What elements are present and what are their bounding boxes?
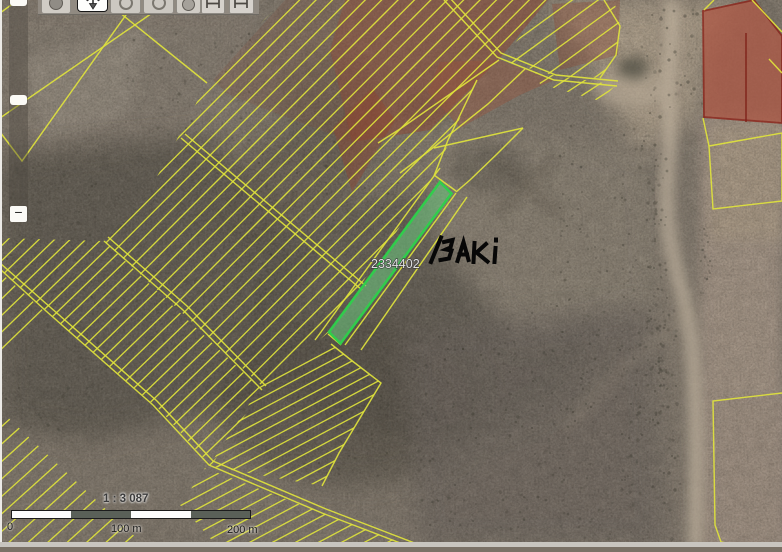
svg-text:2334402: 2334402 xyxy=(371,257,420,271)
